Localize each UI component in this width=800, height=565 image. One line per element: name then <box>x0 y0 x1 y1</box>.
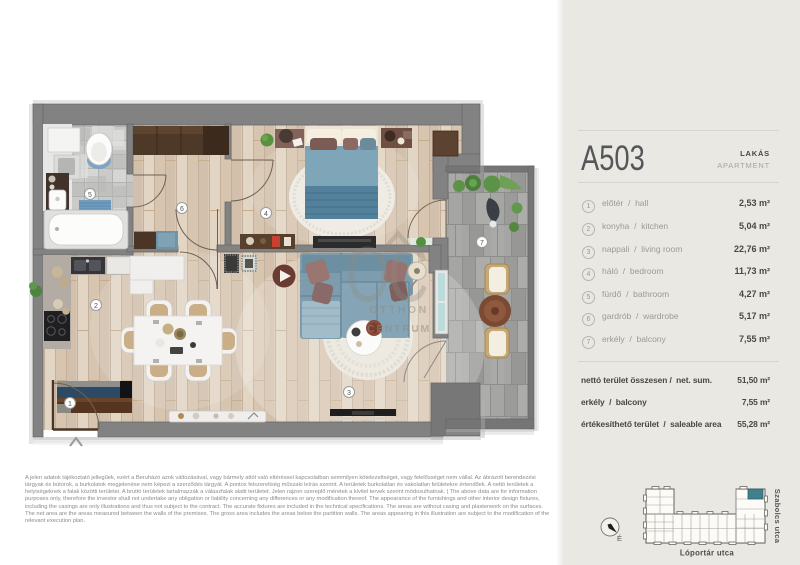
svg-text:3: 3 <box>347 390 351 397</box>
svg-text:4: 4 <box>264 211 268 218</box>
svg-text:Lóportár utca: Lóportár utca <box>680 549 735 558</box>
svg-text:OTTHON: OTTHON <box>369 304 428 316</box>
svg-text:CENTRUM: CENTRUM <box>367 323 431 335</box>
svg-text:7: 7 <box>480 240 484 247</box>
svg-text:1: 1 <box>68 401 72 408</box>
svg-text:Szabolcs utca: Szabolcs utca <box>773 489 782 544</box>
svg-text:É: É <box>617 534 622 543</box>
svg-text:5: 5 <box>88 192 92 199</box>
svg-text:6: 6 <box>180 206 184 213</box>
svg-text:2: 2 <box>94 303 98 310</box>
